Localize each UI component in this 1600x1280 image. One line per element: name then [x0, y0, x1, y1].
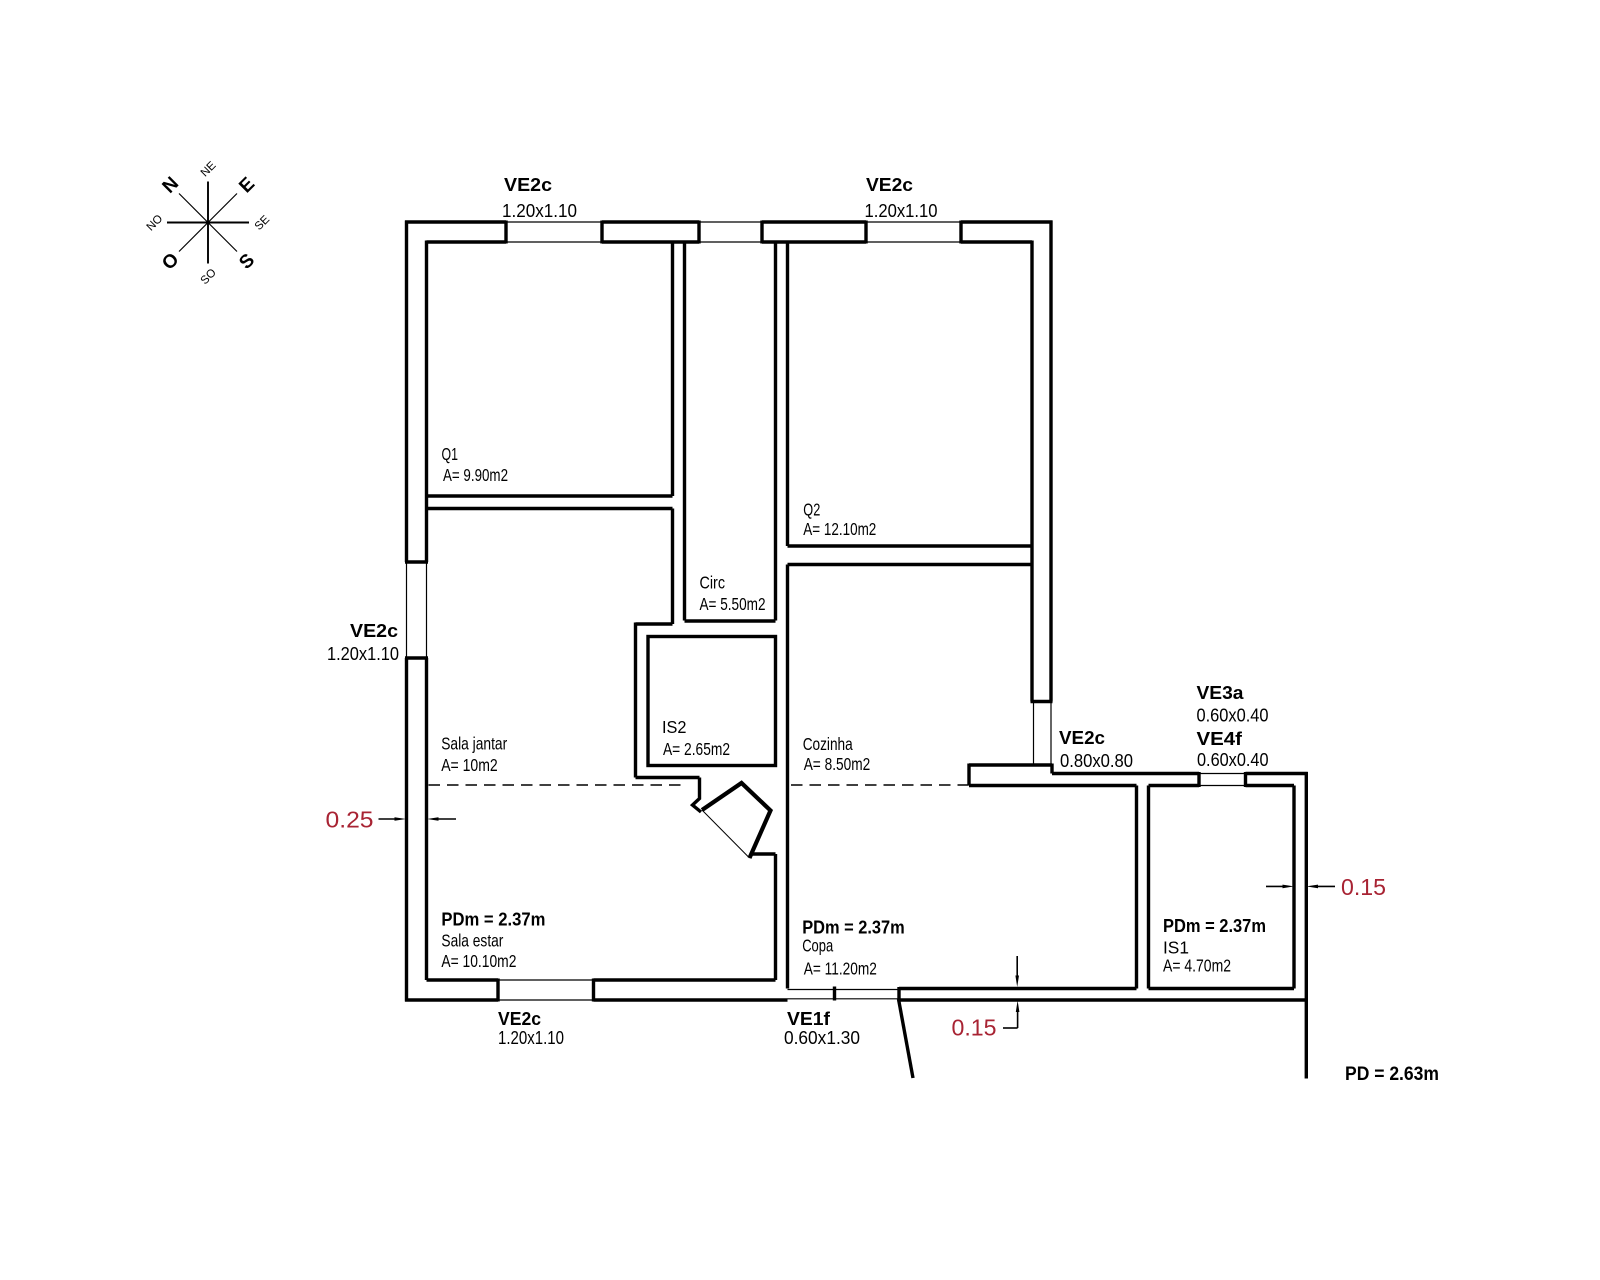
- svg-text:PDm = 2.37m: PDm = 2.37m: [802, 917, 905, 938]
- svg-text:VE2c: VE2c: [350, 620, 398, 641]
- svg-text:IS2: IS2: [662, 717, 687, 737]
- svg-text:IS1: IS1: [1163, 938, 1189, 958]
- svg-text:PDm = 2.37m: PDm = 2.37m: [441, 909, 545, 930]
- svg-text:0.15: 0.15: [952, 1015, 997, 1041]
- svg-text:1.20x1.10: 1.20x1.10: [865, 201, 938, 221]
- svg-text:VE2c: VE2c: [1059, 727, 1105, 748]
- svg-text:A= 10m2: A= 10m2: [441, 755, 498, 775]
- svg-text:Cozinha: Cozinha: [803, 734, 853, 754]
- svg-text:A= 9.90m2: A= 9.90m2: [443, 465, 508, 485]
- svg-text:A= 12.10m2: A= 12.10m2: [803, 519, 876, 539]
- svg-text:A= 11.20m2: A= 11.20m2: [804, 959, 877, 979]
- svg-text:PDm = 2.37m: PDm = 2.37m: [1163, 915, 1266, 936]
- svg-text:1.20x1.10: 1.20x1.10: [502, 201, 577, 221]
- svg-text:VE1f: VE1f: [787, 1008, 831, 1029]
- svg-text:Q2: Q2: [803, 500, 820, 520]
- svg-text:0.60x1.30: 0.60x1.30: [784, 1028, 860, 1048]
- svg-text:Sala jantar: Sala jantar: [441, 734, 507, 754]
- svg-text:Sala estar: Sala estar: [441, 930, 503, 950]
- svg-text:A= 10.10m2: A= 10.10m2: [441, 951, 516, 971]
- svg-text:0.80x0.80: 0.80x0.80: [1060, 751, 1133, 771]
- svg-text:VE2c: VE2c: [504, 174, 552, 195]
- svg-text:1.20x1.10: 1.20x1.10: [327, 644, 399, 664]
- svg-text:VE4f: VE4f: [1197, 728, 1243, 749]
- svg-text:0.15: 0.15: [1341, 874, 1386, 900]
- svg-text:0.25: 0.25: [326, 807, 374, 833]
- svg-text:A= 2.65m2: A= 2.65m2: [663, 739, 730, 759]
- svg-text:Circ: Circ: [700, 573, 726, 593]
- svg-text:A= 8.50m2: A= 8.50m2: [804, 754, 871, 774]
- svg-text:VE2c: VE2c: [866, 174, 913, 195]
- svg-text:Copa: Copa: [802, 936, 833, 956]
- svg-text:0.60x0.40: 0.60x0.40: [1197, 706, 1269, 726]
- svg-text:VE2c: VE2c: [498, 1008, 541, 1029]
- svg-text:A= 4.70m2: A= 4.70m2: [1163, 956, 1231, 976]
- svg-text:1.20x1.10: 1.20x1.10: [498, 1028, 564, 1048]
- svg-text:VE3a: VE3a: [1197, 682, 1245, 703]
- svg-text:0.60x0.40: 0.60x0.40: [1197, 750, 1269, 770]
- svg-text:Q1: Q1: [442, 444, 459, 464]
- svg-text:PD = 2.63m: PD = 2.63m: [1345, 1064, 1439, 1085]
- svg-text:A= 5.50m2: A= 5.50m2: [700, 594, 766, 614]
